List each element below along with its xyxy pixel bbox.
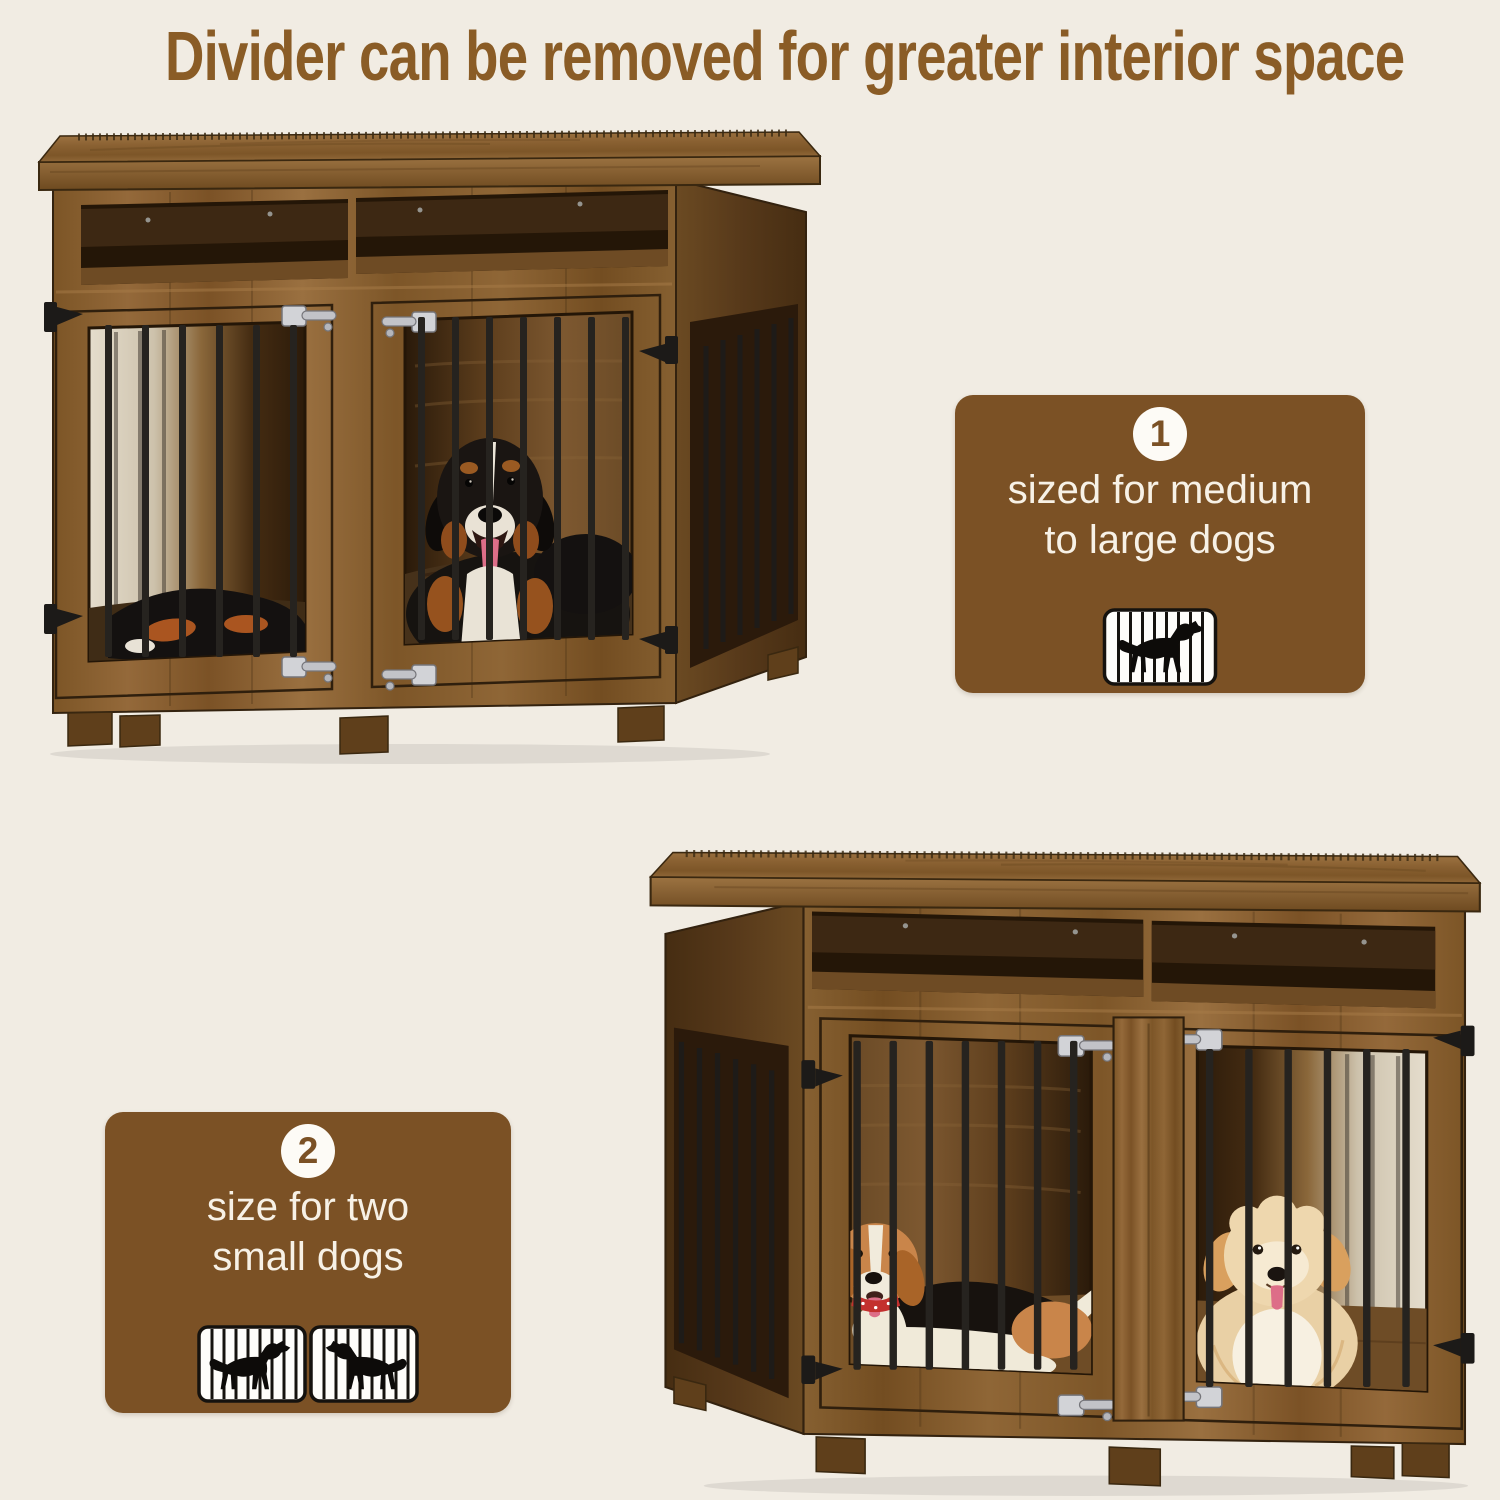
callout-1-line-1: sized for medium bbox=[955, 465, 1365, 515]
step-2-badge: 2 bbox=[281, 1124, 335, 1178]
step-1-badge: 1 bbox=[1133, 407, 1187, 461]
headline: Divider can be removed for greater inter… bbox=[165, 16, 1335, 96]
crate-illustration-two-dogs bbox=[640, 826, 1500, 1498]
product-infographic: Divider can be removed for greater inter… bbox=[0, 0, 1500, 1500]
product-photo-no-divider bbox=[20, 106, 830, 766]
callout-2-text: size for two small dogs bbox=[105, 1182, 511, 1282]
callout-2-line-1: size for two bbox=[105, 1182, 511, 1232]
two-dogs-in-crates-icon bbox=[197, 1324, 419, 1404]
crate-illustration-large-dog bbox=[20, 106, 830, 766]
callout-1-line-2: to large dogs bbox=[955, 515, 1365, 565]
callout-2-line-2: small dogs bbox=[105, 1232, 511, 1282]
dog-in-crate-icon bbox=[1102, 607, 1219, 687]
product-photo-with-divider bbox=[640, 826, 1500, 1498]
callout-1: 1 sized for medium to large dogs bbox=[955, 395, 1365, 693]
callout-2: 2 size for two small dogs bbox=[105, 1112, 511, 1413]
callout-1-text: sized for medium to large dogs bbox=[955, 465, 1365, 565]
